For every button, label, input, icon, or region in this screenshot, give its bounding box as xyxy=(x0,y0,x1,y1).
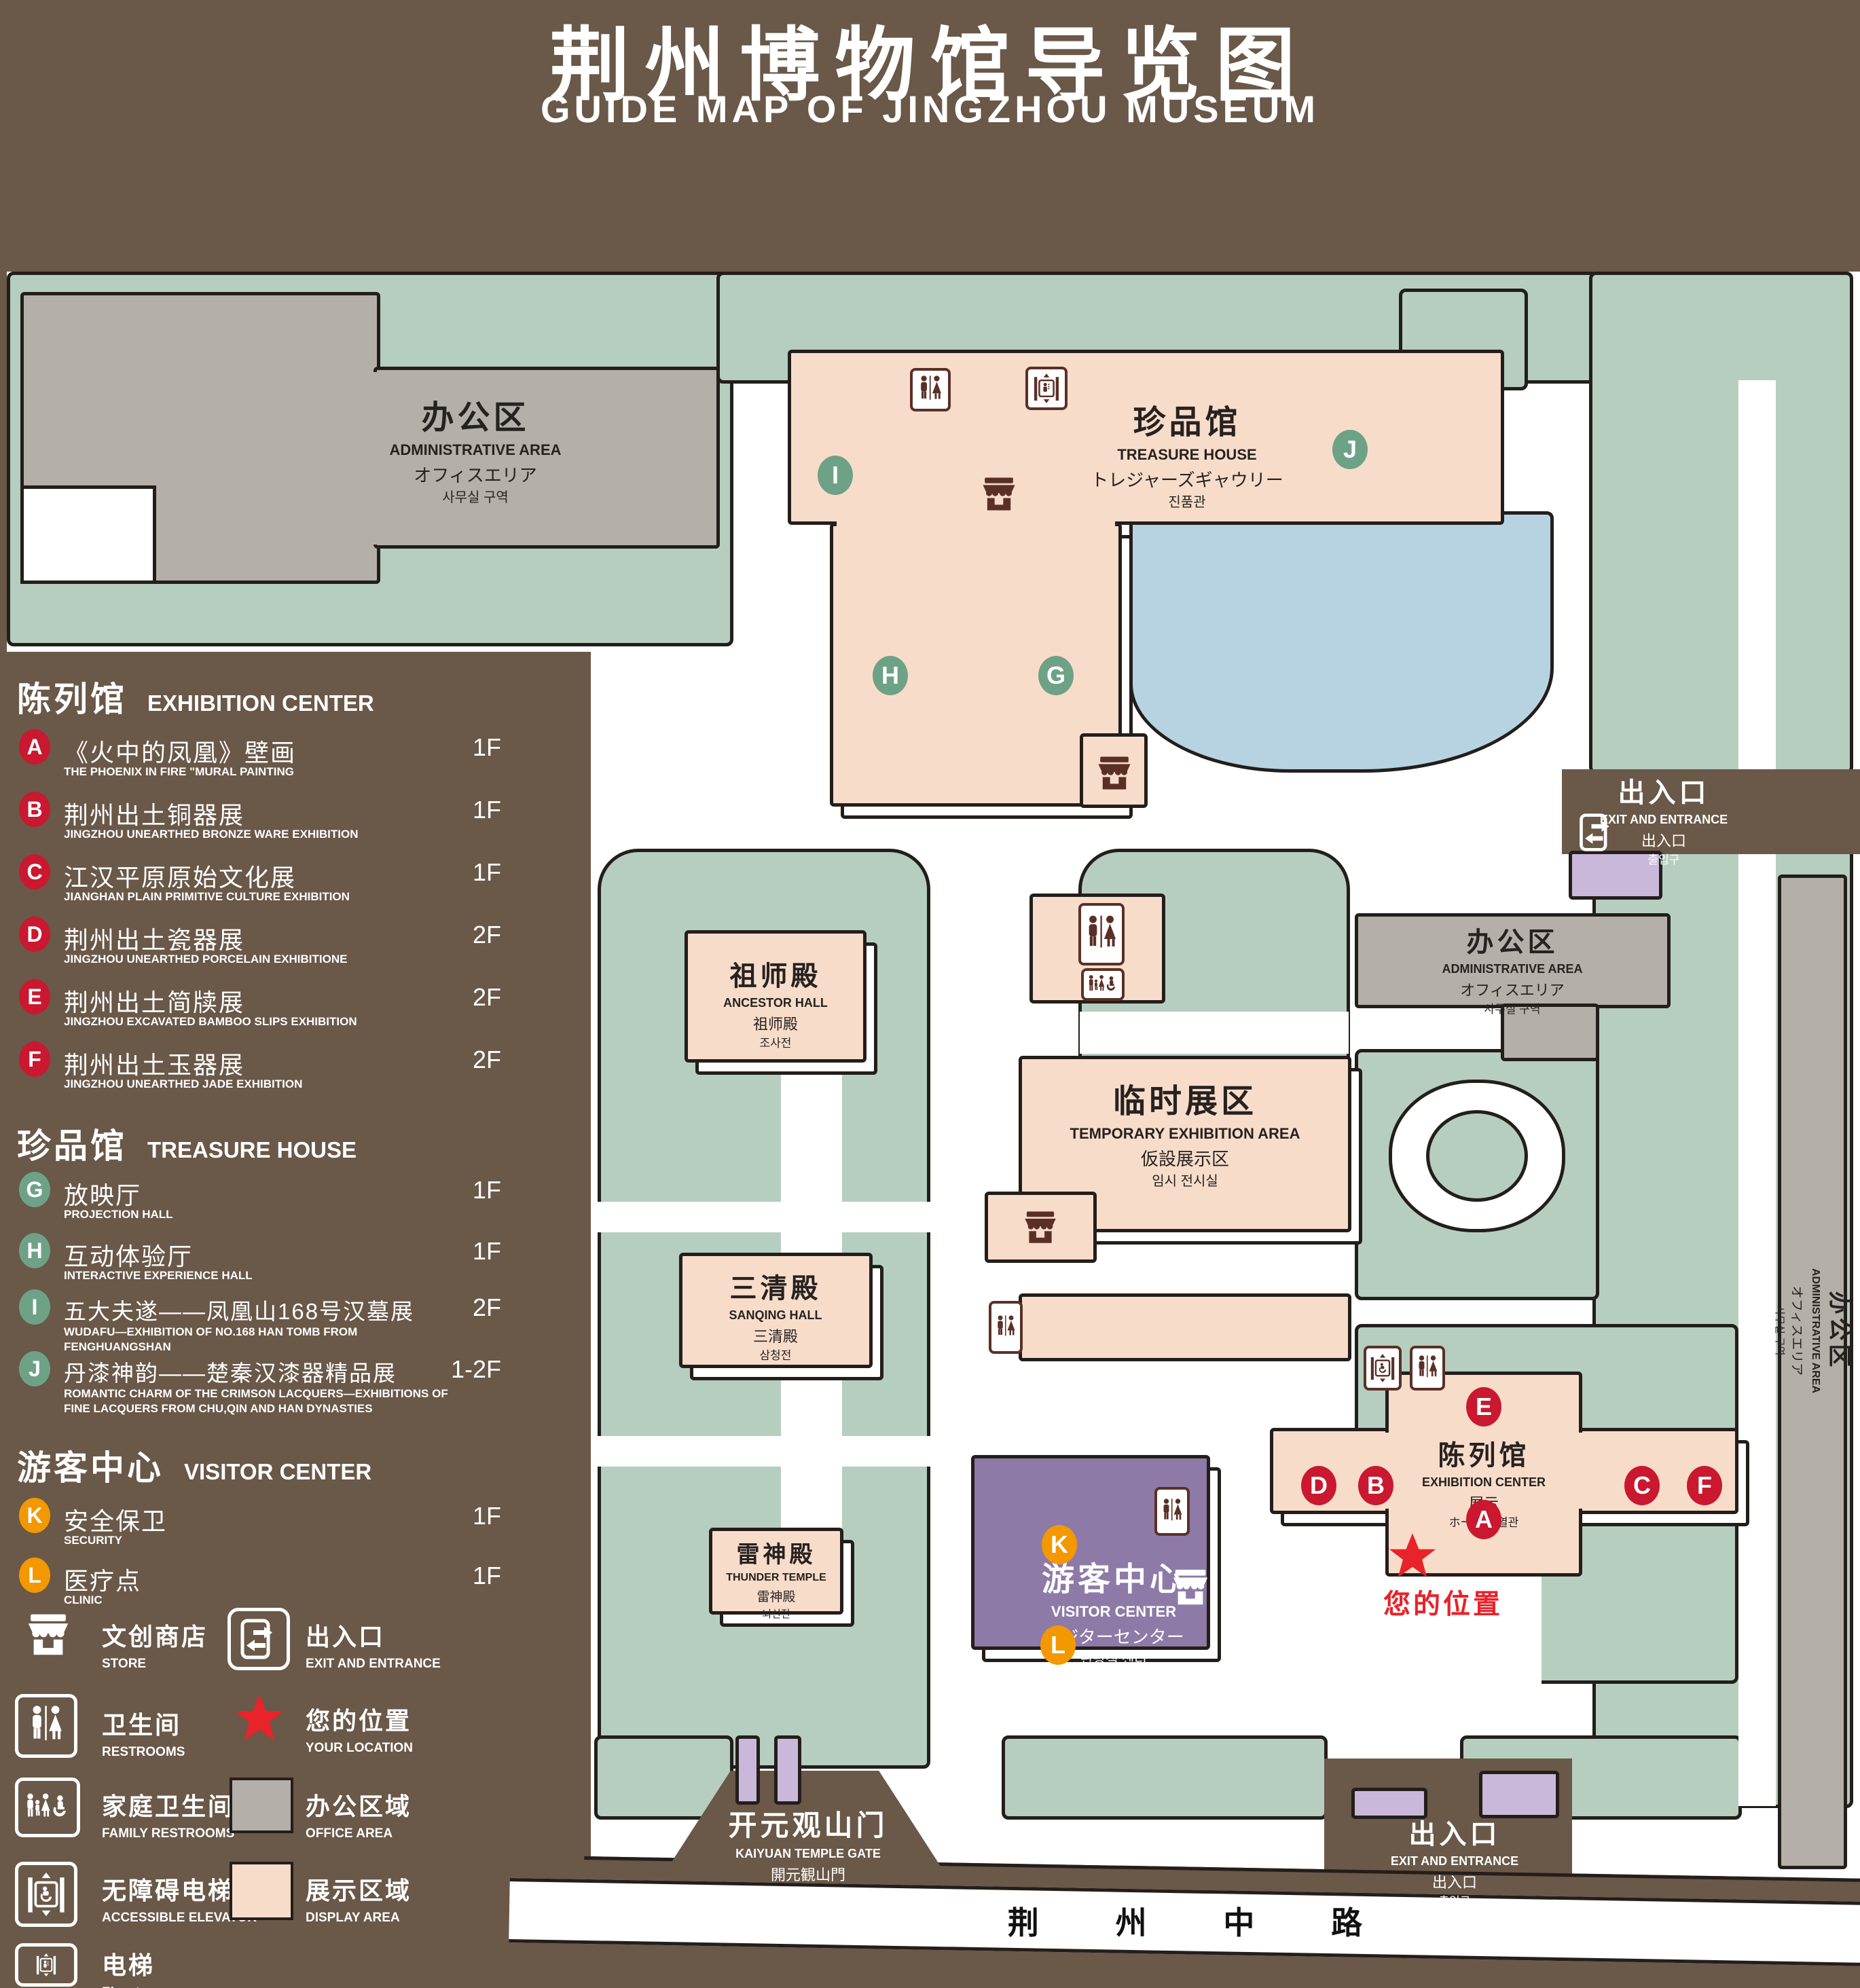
symbol-en: FAMILY RESTROOMS xyxy=(102,1826,234,1841)
map-marker-e: E xyxy=(1466,1387,1501,1426)
legend-symbol-family-restrooms: 家庭卫生间 FAMILY RESTROOMS xyxy=(102,1787,234,1841)
symbol-en: EXIT AND ENTRANCE xyxy=(306,1657,441,1672)
section-title-en: VISITOR CENTER xyxy=(184,1459,371,1485)
item-zh: 互动体验厅 xyxy=(64,1237,193,1272)
legend-marker-j: J xyxy=(19,1351,50,1386)
item-en: JINGZHOU EXCAVATED BAMBOO SLIPS EXHIBITI… xyxy=(64,1014,458,1029)
section-title-en: EXHIBITION CENTER xyxy=(147,691,374,716)
gate-pillar-right xyxy=(774,1735,801,1805)
admin-right-ja: オフィスエリア xyxy=(1460,981,1565,1001)
map-marker-k: K xyxy=(1042,1525,1077,1564)
thunder-zh: 雷神殿 xyxy=(737,1540,816,1570)
temp-zh: 临时展区 xyxy=(1113,1081,1257,1123)
legend-marker-f: F xyxy=(19,1042,50,1077)
admin-right-zh: 办公区 xyxy=(1467,925,1558,960)
item-en: PROJECTION HALL xyxy=(64,1207,458,1222)
item-zh: 江汉平原原始文化展 xyxy=(64,858,296,894)
legend-marker-l: L xyxy=(19,1558,50,1593)
symbol-zh: 办公区域 xyxy=(306,1787,412,1822)
admin-right-en: ADMINISTRATIVE AREA xyxy=(1442,961,1583,977)
item-floor: 2F xyxy=(473,1046,501,1074)
legend-section-visitor: 游客中心 VISITOR CENTER xyxy=(17,1441,371,1490)
item-en: CLINIC xyxy=(64,1593,458,1608)
sanqing-en: SANQING HALL xyxy=(729,1308,822,1323)
item-zh: 安全保卫 xyxy=(64,1502,167,1537)
admin-right-ko: 사무실 구역 xyxy=(1484,1002,1541,1017)
symbol-en: YOUR LOCATION xyxy=(306,1741,413,1756)
item-en: WUDAFU—EXHIBITION OF NO.168 HAN TOMB FRO… xyxy=(64,1325,458,1355)
label-kaiyuan-gate: 开元观山门 KAIYUAN TEMPLE GATE 開元観山門 산문을 열다 xyxy=(686,1807,930,1902)
treasure-zh: 珍品馆 xyxy=(1133,402,1241,444)
admin-far-right-ko: 사무실 구역 xyxy=(1772,1306,1786,1355)
label-admin-far-right: 办公区 ADMINISTRATIVE AREA オフィスエリア 사무실 구역 xyxy=(1766,1195,1860,1467)
exit-top-ja: 出入口 xyxy=(1641,832,1686,851)
symbol-en: Elevator xyxy=(102,1985,155,1988)
item-floor: 2F xyxy=(473,1293,501,1322)
item-floor: 1F xyxy=(473,1562,501,1590)
item-zh: 放映厅 xyxy=(64,1176,141,1211)
map-marker-c: C xyxy=(1624,1466,1660,1505)
item-floor: 1-2F xyxy=(451,1355,501,1384)
guide-map-poster: 荆州博物馆导览图 GUIDE MAP OF JINGZHOU MUSEUM xyxy=(0,0,1860,1988)
legend-marker-k: K xyxy=(19,1498,50,1533)
gate-pillar-left xyxy=(735,1735,760,1805)
legend-symbol-elevator: 电梯 Elevator xyxy=(102,1946,155,1988)
item-en: JINGZHOU UNEARTHED JADE EXHIBITION xyxy=(64,1077,458,1092)
label-exit-bottom: 出入口 EXIT AND ENTRANCE 出入口 출입구 xyxy=(1339,1817,1570,1909)
visitor-zh: 游客中心 xyxy=(1042,1559,1186,1601)
sanqing-zh: 三清殿 xyxy=(730,1271,822,1306)
accessible-elevator-icon xyxy=(1364,1346,1402,1391)
legend-symbol-display-area: 展示区域 DISPLAY AREA xyxy=(306,1871,412,1926)
symbol-zh: 电梯 xyxy=(102,1946,155,1981)
symbol-en: RESTROOMS xyxy=(102,1745,185,1760)
map-marker-l: L xyxy=(1040,1625,1076,1665)
symbol-zh: 家庭卫生间 xyxy=(102,1787,234,1822)
thunder-en: THUNDER TEMPLE xyxy=(726,1571,826,1585)
admin-far-right-zh: 办公区 xyxy=(1823,1291,1853,1371)
exhibition-en: EXHIBITION CENTER xyxy=(1422,1475,1546,1490)
item-en: INTERACTIVE EXPERIENCE HALL xyxy=(64,1268,458,1283)
family-restrooms-icon xyxy=(1081,968,1125,1001)
exit-bottom-en: EXIT AND ENTRANCE xyxy=(1391,1854,1518,1869)
legend-marker-g: G xyxy=(19,1172,50,1207)
symbol-en: DISPLAY AREA xyxy=(306,1911,412,1926)
restrooms-icon xyxy=(910,368,951,411)
legend-symbol-restrooms: 卫生间 RESTROOMS xyxy=(102,1706,185,1760)
exhibition-zh: 陈列馆 xyxy=(1438,1438,1530,1473)
item-floor: 1F xyxy=(473,733,501,762)
item-floor: 1F xyxy=(473,796,501,824)
visitor-ko: 관광객 센터 xyxy=(1080,1651,1147,1668)
ancestor-en: ANCESTOR HALL xyxy=(723,995,828,1011)
your-location-star-icon xyxy=(1387,1532,1438,1581)
symbol-zh: 出入口 xyxy=(306,1617,441,1653)
map-marker-f: F xyxy=(1687,1466,1722,1505)
legend-marker-d: D xyxy=(19,917,50,952)
path-left-col-horizontal-2 xyxy=(598,1436,930,1467)
legend-marker-e: E xyxy=(19,979,50,1014)
map-marker-d: D xyxy=(1301,1466,1336,1505)
item-en: JIANGHAN PLAIN PRIMITIVE CULTURE EXHIBIT… xyxy=(64,889,458,904)
treasure-ko: 진품관 xyxy=(1168,494,1205,511)
item-en: THE PHOENIX IN FIRE "MURAL PAINTING xyxy=(64,765,458,779)
path-left-col-horizontal-1 xyxy=(598,1202,930,1232)
office-area-swatch xyxy=(230,1778,293,1833)
item-zh: 荆州出土瓷器展 xyxy=(64,921,244,956)
legend-marker-b: B xyxy=(19,792,50,827)
treasure-ja: トレジャーズギャウリー xyxy=(1091,469,1283,492)
map-marker-i: I xyxy=(818,456,853,495)
visitor-en: VISITOR CENTER xyxy=(1051,1602,1176,1622)
store-icon xyxy=(1021,1207,1059,1248)
sanqing-ja: 三清殿 xyxy=(753,1327,798,1347)
path-center-col-horizontal xyxy=(1080,1012,1349,1054)
item-floor: 1F xyxy=(473,858,501,887)
exit-top-zh: 出入口 xyxy=(1618,775,1710,811)
section-title-en: TREASURE HOUSE xyxy=(147,1137,357,1163)
your-location-icon xyxy=(232,1693,287,1745)
admin-top-en: ADMINISTRATIVE AREA xyxy=(390,441,562,460)
family-restrooms-icon xyxy=(15,1778,80,1837)
item-floor: 1F xyxy=(473,1237,501,1266)
elevator-icon xyxy=(15,1943,77,1987)
exit-bottom-zh: 出入口 xyxy=(1409,1817,1501,1852)
legend-symbol-store: 文创商店 STORE xyxy=(102,1617,208,1672)
legend-symbol-your-location: 您的位置 YOUR LOCATION xyxy=(306,1701,413,1756)
road-name: 荆 州 中 路 xyxy=(591,1898,1813,1943)
legend-symbol-exit: 出入口 EXIT AND ENTRANCE xyxy=(306,1617,441,1672)
item-en: JINGZHOU UNEARTHED BRONZE WARE EXHIBITIO… xyxy=(64,827,458,842)
gate-en: KAIYUAN TEMPLE GATE xyxy=(735,1846,881,1862)
section-title-zh: 珍品馆 xyxy=(17,1119,127,1168)
map-marker-h: H xyxy=(873,656,908,695)
item-zh: 荆州出土铜器展 xyxy=(64,796,244,831)
symbol-zh: 展示区域 xyxy=(306,1871,412,1907)
store-icon xyxy=(1095,752,1134,794)
symbol-zh: 您的位置 xyxy=(306,1701,413,1737)
restrooms-icon xyxy=(989,1301,1023,1354)
thunder-ko: 뇌신전 xyxy=(762,1608,790,1621)
label-thunder-temple: 雷神殿 THUNDER TEMPLE 雷神殿 뇌신전 xyxy=(695,1540,858,1621)
item-zh: 五大夫遂——凤凰山168号汉墓展 xyxy=(64,1293,414,1326)
treasure-en: TREASURE HOUSE xyxy=(1117,445,1256,465)
restrooms-icon xyxy=(1078,903,1125,965)
section-title-zh: 游客中心 xyxy=(17,1441,164,1490)
restrooms-icon xyxy=(1410,1346,1445,1391)
pond xyxy=(1129,511,1554,773)
symbol-en: OFFICE AREA xyxy=(306,1826,412,1841)
legend-marker-i: I xyxy=(19,1289,50,1325)
map-marker-b: B xyxy=(1358,1466,1393,1505)
exit-top-ko: 출입구 xyxy=(1648,853,1680,868)
symbol-zh: 文创商店 xyxy=(102,1617,208,1653)
label-admin-top: 办公区 ADMINISTRATIVE AREA オフィスエリア 사무실 구역 xyxy=(306,397,645,507)
display-area-swatch xyxy=(230,1862,293,1920)
legend-marker-c: C xyxy=(19,854,50,889)
lawn-top-right xyxy=(1589,272,1853,774)
ancestor-zh: 祖师殿 xyxy=(730,959,822,994)
admin-top-ko: 사무실 구역 xyxy=(442,489,509,507)
label-ancestor-hall: 祖师殿 ANCESTOR HALL 祖师殿 조사전 xyxy=(687,959,864,1051)
legend-marker-h: H xyxy=(19,1233,50,1268)
restrooms-icon xyxy=(1154,1487,1190,1536)
building-temp-strip xyxy=(1019,1293,1351,1361)
map-marker-j: J xyxy=(1332,430,1368,469)
symbol-en: STORE xyxy=(102,1657,208,1672)
ancestor-ko: 조사전 xyxy=(760,1036,792,1051)
gate-structure-bottom-exit-1 xyxy=(1351,1788,1427,1819)
store-icon xyxy=(17,1610,79,1659)
admin-top-notch xyxy=(20,485,156,584)
gate-structure-bottom-exit-2 xyxy=(1479,1771,1559,1818)
label-exit-top: 出入口 EXIT AND ENTRANCE 出入口 출입구 xyxy=(1548,775,1779,868)
item-zh: 荆州出土玉器展 xyxy=(64,1046,244,1081)
item-en: SECURITY xyxy=(64,1533,458,1548)
section-title-zh: 陈列馆 xyxy=(17,672,127,721)
path-right-column xyxy=(1738,380,1776,1806)
symbol-zh: 卫生间 xyxy=(102,1706,185,1741)
temp-en: TEMPORARY EXHIBITION AREA xyxy=(1070,1124,1300,1144)
page-subtitle: GUIDE MAP OF JINGZHOU MUSEUM xyxy=(0,87,1860,131)
admin-top-ja: オフィスエリア xyxy=(414,464,536,487)
item-zh: 医疗点 xyxy=(64,1562,141,1597)
label-admin-right: 办公区 ADMINISTRATIVE AREA オフィスエリア 사무실 구역 xyxy=(1376,925,1648,1017)
item-floor: 2F xyxy=(473,983,501,1012)
exit-bottom-ja: 出入口 xyxy=(1432,1873,1477,1893)
legend-marker-a: A xyxy=(19,729,50,765)
restrooms-icon xyxy=(15,1694,77,1758)
garden-island xyxy=(1426,1110,1528,1202)
label-treasure-house: 珍品馆 TREASURE HOUSE トレジャーズギャウリー 진품관 xyxy=(1017,402,1357,511)
legend-symbol-office-area: 办公区域 OFFICE AREA xyxy=(306,1787,412,1841)
label-visitor-center: 游客中心 VISITOR CENTER ビジターセンター 관광객 센터 xyxy=(978,1559,1250,1668)
item-zh: 《火中的凤凰》壁画 xyxy=(64,733,296,769)
treasure-seam xyxy=(837,520,1115,534)
sanqing-ko: 삼청전 xyxy=(760,1348,792,1363)
your-location-label: 您的位置 xyxy=(1358,1582,1528,1621)
legend-section-exhibition: 陈列馆 EXHIBITION CENTER xyxy=(17,672,374,721)
label-sanqing-hall: 三清殿 SANQING HALL 三清殿 삼청전 xyxy=(687,1271,864,1363)
building-treasure-wing xyxy=(830,523,1122,807)
exit-top-en: EXIT AND ENTRANCE xyxy=(1600,812,1728,828)
admin-top-zh: 办公区 xyxy=(421,397,529,439)
item-zh: 荆州出土简牍展 xyxy=(64,983,244,1018)
label-temporary-exhibition: 临时展区 TEMPORARY EXHIBITION AREA 仮設展示区 임시 … xyxy=(1022,1081,1348,1190)
thunder-ja: 雷神殿 xyxy=(756,1589,795,1606)
map-marker-g: G xyxy=(1038,656,1074,695)
admin-far-right-ja: オフィスエリア xyxy=(1787,1286,1804,1376)
map-marker-a: A xyxy=(1466,1500,1501,1539)
gate-ja: 開元観山門 xyxy=(771,1866,845,1885)
legend-section-treasure: 珍品馆 TREASURE HOUSE xyxy=(17,1119,357,1168)
temp-ja: 仮設展示区 xyxy=(1141,1148,1229,1171)
temp-ko: 임시 전시실 xyxy=(1152,1173,1218,1190)
item-zh: 丹漆神韵——楚秦汉漆器精品展 xyxy=(64,1355,397,1388)
gate-zh: 开元观山门 xyxy=(728,1807,888,1845)
item-floor: 2F xyxy=(473,921,501,949)
item-en: ROMANTIC CHARM OF THE CRIMSON LACQUERS—E… xyxy=(64,1386,458,1416)
accessible-elevator-icon xyxy=(15,1862,77,1927)
ancestor-ja: 祖师殿 xyxy=(753,1015,798,1035)
item-en: JINGZHOU UNEARTHED PORCELAIN EXHIBITIONE xyxy=(64,952,458,967)
admin-far-right-en: ADMINISTRATIVE AREA xyxy=(1808,1268,1823,1393)
item-floor: 1F xyxy=(473,1502,501,1530)
item-floor: 1F xyxy=(473,1176,501,1204)
lawn-bottom-center xyxy=(1002,1735,1328,1820)
store-icon xyxy=(979,473,1019,515)
exit-icon xyxy=(227,1608,290,1670)
